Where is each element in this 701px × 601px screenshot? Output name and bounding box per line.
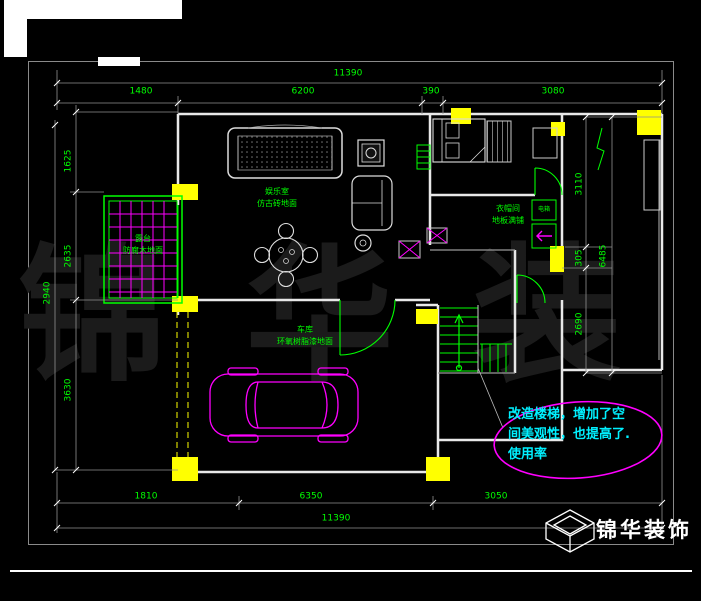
dim-right-1: 3110 — [576, 173, 585, 196]
note-leader-line — [478, 368, 503, 428]
dim-top-2: 6200 — [292, 88, 315, 97]
room-name: 露台 — [123, 233, 163, 245]
dim-top-3: 390 — [422, 88, 439, 97]
room-floor: 地板满铺 — [492, 215, 524, 227]
renovation-note: 改造楼梯，增加了空 间美观性，也提高了. 使用率 — [508, 405, 668, 465]
company-logo-text: 锦华装饰 — [596, 514, 692, 544]
dim-bottom-3: 3050 — [485, 493, 508, 502]
bed — [433, 119, 485, 162]
room-name: 娱乐室 — [257, 186, 297, 198]
dim-bottom-2: 6350 — [300, 493, 323, 502]
note-line: 改造楼梯，增加了空 — [508, 405, 668, 425]
dim-left-3: 3630 — [65, 379, 74, 402]
electric-box-label: 电箱 — [538, 207, 550, 213]
dining-table-set — [255, 224, 318, 287]
wardrobe — [487, 121, 557, 162]
room-floor: 防腐木地面 — [123, 245, 163, 257]
room-name: 衣帽间 — [492, 203, 524, 215]
room-label-closet: 衣帽间 地板满铺 — [492, 203, 524, 226]
room-label-garage: 车库 环氧树脂漆地面 — [277, 324, 333, 347]
room-name: 车库 — [277, 324, 333, 336]
dim-top-4: 3080 — [542, 88, 565, 97]
dim-right-outer: 6485 — [600, 245, 609, 268]
pool-table — [228, 125, 342, 178]
dim-top-overall: 11390 — [334, 70, 363, 79]
dim-right-2: 305 — [576, 249, 585, 266]
garage-door-dashed — [177, 312, 188, 466]
sofa — [352, 176, 392, 251]
room-floor: 仿古砖地面 — [257, 198, 297, 210]
dim-bottom-1: 1810 — [135, 493, 158, 502]
dim-left-outer: 2940 — [44, 282, 53, 305]
dim-right-3: 2690 — [576, 313, 585, 336]
tv-cabinet — [358, 140, 384, 166]
cube-logo-icon — [546, 510, 594, 552]
car-icon — [210, 368, 358, 442]
stairs — [440, 305, 512, 373]
dim-bottom-overall: 11390 — [322, 515, 351, 524]
dim-top-1: 1480 — [130, 88, 153, 97]
cad-floorplan-screenshot: 锦 华 装 饰 — [0, 0, 701, 601]
shaft-boxes — [399, 228, 447, 258]
floor-plan-drawing — [0, 0, 701, 601]
room-floor: 环氧树脂漆地面 — [277, 336, 333, 348]
room-label-terrace: 露台 防腐木地面 — [123, 233, 163, 256]
right-room-cabinet — [644, 140, 660, 210]
walls-secondary — [430, 140, 659, 373]
flue-hatch — [417, 145, 430, 169]
room-label-entertainment: 娱乐室 仿古砖地面 — [257, 186, 297, 209]
note-line: 使用率 — [508, 445, 668, 465]
dim-left-1: 1625 — [65, 150, 74, 173]
note-line: 间美观性，也提高了. — [508, 425, 668, 445]
dim-left-2: 2635 — [65, 245, 74, 268]
